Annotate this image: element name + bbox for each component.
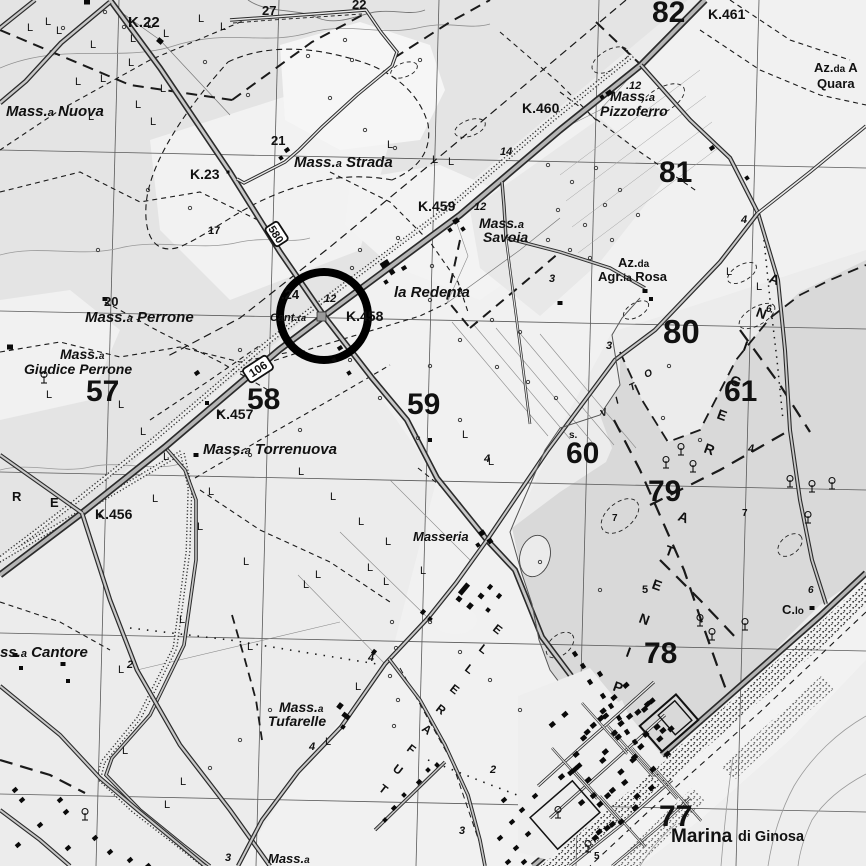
svg-text:K.459: K.459 xyxy=(418,198,456,214)
svg-text:K.23: K.23 xyxy=(190,166,220,182)
svg-text:K.461: K.461 xyxy=(708,6,746,22)
svg-text:Cant.ra: Cant.ra xyxy=(270,312,306,324)
svg-text:14: 14 xyxy=(500,146,512,158)
svg-text:4: 4 xyxy=(367,652,374,664)
svg-text:4: 4 xyxy=(483,453,490,465)
svg-text:L: L xyxy=(140,426,146,438)
svg-text:4: 4 xyxy=(747,443,754,455)
svg-text:L: L xyxy=(56,25,62,37)
svg-text:L: L xyxy=(358,516,364,528)
svg-text:L: L xyxy=(243,556,249,568)
svg-text:27: 27 xyxy=(262,3,276,18)
svg-text:L: L xyxy=(448,156,454,168)
svg-text:Mass.a: Mass.a xyxy=(610,88,655,104)
svg-text:81: 81 xyxy=(659,156,692,189)
svg-text:L: L xyxy=(45,16,51,28)
svg-text:L: L xyxy=(383,576,389,588)
svg-text:79: 79 xyxy=(648,475,681,508)
svg-text:3: 3 xyxy=(549,273,555,285)
svg-text:60: 60 xyxy=(566,437,599,470)
svg-text:78: 78 xyxy=(644,637,677,670)
svg-text:22: 22 xyxy=(352,0,366,12)
svg-text:3: 3 xyxy=(225,852,231,864)
svg-text:7: 7 xyxy=(612,513,618,524)
svg-text:5: 5 xyxy=(594,851,600,862)
svg-text:L: L xyxy=(756,281,762,293)
svg-text:L: L xyxy=(122,745,128,757)
svg-text:L: L xyxy=(247,641,253,653)
svg-text:Mass.a Strada: Mass.a Strada xyxy=(294,154,393,171)
svg-text:L: L xyxy=(315,569,321,581)
svg-text:82: 82 xyxy=(652,0,685,29)
svg-text:3: 3 xyxy=(606,340,612,352)
svg-text:K.460: K.460 xyxy=(522,100,560,116)
svg-text:Mass.a: Mass.a xyxy=(268,851,310,866)
svg-text:Mass.a Torrenuova: Mass.a Torrenuova xyxy=(203,441,337,458)
svg-text:Mass.a Perrone: Mass.a Perrone xyxy=(85,309,194,326)
svg-text:Quara: Quara xyxy=(817,76,855,91)
svg-text:L: L xyxy=(75,76,81,88)
svg-text:Mass.a: Mass.a xyxy=(60,346,105,362)
svg-text:80: 80 xyxy=(663,313,700,350)
svg-text:Agr.ia Rosa: Agr.ia Rosa xyxy=(598,269,668,284)
svg-text:di Ginosa: di Ginosa xyxy=(738,829,805,845)
svg-text:L: L xyxy=(325,736,331,748)
svg-text:L: L xyxy=(432,154,438,166)
svg-text:L: L xyxy=(160,83,166,95)
svg-text:12: 12 xyxy=(474,201,486,213)
svg-text:L: L xyxy=(385,536,391,548)
svg-text:L: L xyxy=(420,565,426,577)
svg-text:Marina: Marina xyxy=(671,826,733,847)
svg-text:L: L xyxy=(208,486,214,498)
svg-text:Mass.a Nuova: Mass.a Nuova xyxy=(6,103,104,120)
svg-text:L: L xyxy=(303,579,309,591)
svg-text:21: 21 xyxy=(271,133,285,148)
svg-text:L: L xyxy=(128,57,134,69)
svg-text:Masseria: Masseria xyxy=(413,529,469,544)
svg-text:E: E xyxy=(50,495,59,510)
svg-text:6: 6 xyxy=(808,585,814,596)
svg-text:57: 57 xyxy=(86,375,119,408)
svg-text:K.458: K.458 xyxy=(346,308,384,324)
svg-text:L: L xyxy=(130,33,136,45)
svg-text:L: L xyxy=(387,139,393,151)
svg-text:7: 7 xyxy=(742,508,748,519)
svg-text:L: L xyxy=(164,799,170,811)
svg-text:L: L xyxy=(462,429,468,441)
svg-text:L: L xyxy=(27,22,33,34)
svg-text:L: L xyxy=(198,13,204,25)
svg-text:L: L xyxy=(197,521,203,533)
svg-text:L: L xyxy=(367,562,373,574)
svg-text:12: 12 xyxy=(324,293,336,305)
svg-text:L: L xyxy=(330,491,336,503)
svg-text:L: L xyxy=(220,21,226,33)
svg-text:K.457: K.457 xyxy=(216,406,254,422)
svg-text:L: L xyxy=(90,39,96,51)
svg-text:K.456: K.456 xyxy=(95,506,133,522)
svg-text:L: L xyxy=(298,466,304,478)
svg-text:la Redenta: la Redenta xyxy=(394,284,470,301)
svg-text:17: 17 xyxy=(208,225,220,237)
svg-text:Savoia: Savoia xyxy=(483,229,528,245)
svg-text:4: 4 xyxy=(740,214,747,226)
svg-text:L: L xyxy=(355,681,361,693)
svg-text:R: R xyxy=(12,489,22,504)
svg-text:L: L xyxy=(152,493,158,505)
svg-text:2: 2 xyxy=(489,764,496,776)
svg-text:L: L xyxy=(118,664,124,676)
svg-text:2: 2 xyxy=(126,659,133,671)
svg-text:59: 59 xyxy=(407,388,440,421)
svg-text:L: L xyxy=(163,28,169,40)
svg-text:L: L xyxy=(150,116,156,128)
svg-text:5: 5 xyxy=(642,584,648,596)
svg-text:L: L xyxy=(46,389,52,401)
svg-text:L: L xyxy=(135,99,141,111)
svg-text:3: 3 xyxy=(459,825,465,837)
svg-text:L: L xyxy=(163,451,169,463)
svg-text:Pizzoferro: Pizzoferro xyxy=(600,103,668,119)
svg-text:20: 20 xyxy=(104,294,118,309)
svg-text:L: L xyxy=(726,266,732,278)
svg-text:L: L xyxy=(179,614,185,626)
svg-text:L: L xyxy=(100,73,106,85)
svg-text:.24: .24 xyxy=(281,287,300,302)
svg-text:ss.a Cantore: ss.a Cantore xyxy=(0,644,88,661)
svg-text:L: L xyxy=(180,776,186,788)
svg-text:K.22: K.22 xyxy=(128,14,160,31)
svg-text:Tufarelle: Tufarelle xyxy=(268,713,326,729)
svg-text:4: 4 xyxy=(308,741,315,753)
